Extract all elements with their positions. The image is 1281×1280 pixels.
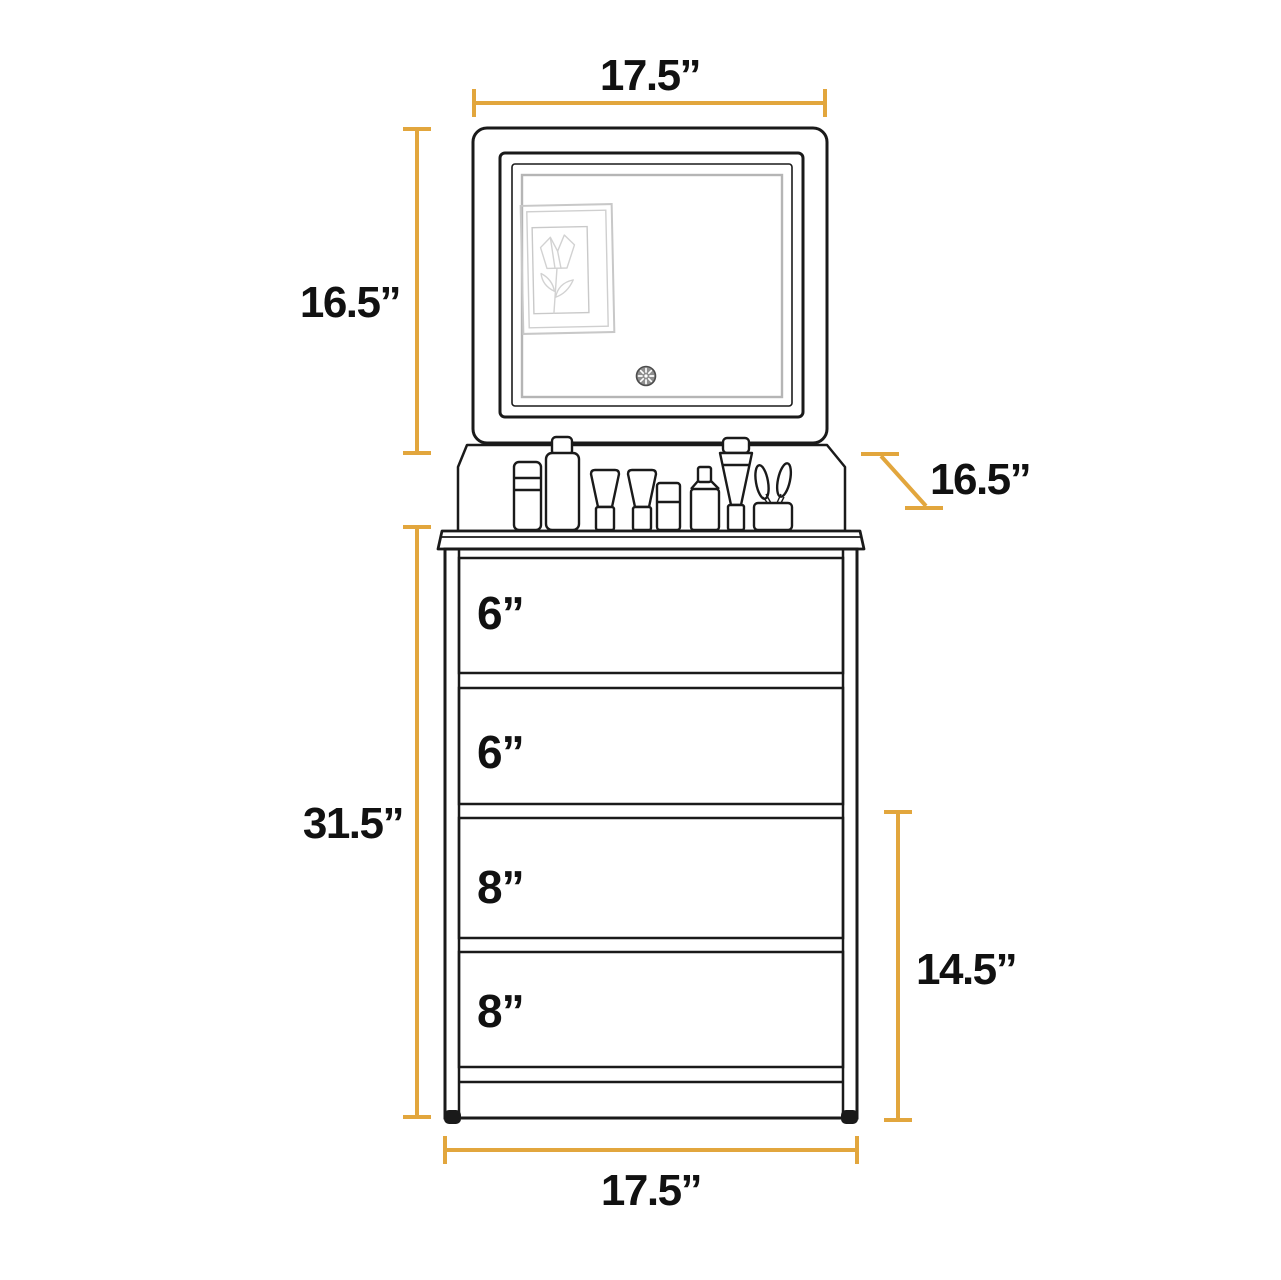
bottle-body xyxy=(546,453,579,530)
led-touch-button-icon xyxy=(637,367,656,386)
mirror-width-label: 17.5” xyxy=(600,51,700,100)
depth-label: 16.5” xyxy=(930,455,1030,504)
perfume-body xyxy=(691,489,719,530)
dresser-body: 6” 6” 8” 8” xyxy=(444,549,858,1124)
right-foot xyxy=(841,1110,858,1124)
cream-jar xyxy=(514,462,541,530)
dim-base-width: 17.5” xyxy=(445,1136,857,1215)
perfume-neck xyxy=(698,467,711,482)
touch-button-center-dot xyxy=(644,374,647,377)
counter-top xyxy=(438,531,864,549)
lower-height-label: 14.5” xyxy=(916,945,1016,994)
cup xyxy=(754,503,792,530)
pump-cap xyxy=(723,438,749,453)
mirror xyxy=(473,128,827,443)
dim-mirror-height: 16.5” xyxy=(300,129,431,453)
dimension-diagram: 6” 6” 8” 8” 17.5” 16.5” 16.5” 31.5” 14.5 xyxy=(0,0,1281,1280)
dim-lower-height: 14.5” xyxy=(884,812,1016,1120)
base-width-label: 17.5” xyxy=(601,1166,701,1215)
total-height-label: 31.5” xyxy=(303,799,403,848)
mirror-height-label: 16.5” xyxy=(300,278,400,327)
dim-mirror-width: 17.5” xyxy=(474,51,825,117)
drawer-1-size-label: 6” xyxy=(477,587,524,639)
small-bottle xyxy=(657,483,680,530)
drawer-4-size-label: 8” xyxy=(477,985,524,1037)
vanity-diagram-svg: 6” 6” 8” 8” 17.5” 16.5” 16.5” 31.5” 14.5 xyxy=(0,0,1281,1280)
dim-depth: 16.5” xyxy=(861,454,1030,508)
drawer-3-size-label: 8” xyxy=(477,861,524,913)
drawer-2-size-label: 6” xyxy=(477,726,524,778)
dim-total-height: 31.5” xyxy=(303,527,431,1117)
left-foot xyxy=(444,1110,461,1124)
